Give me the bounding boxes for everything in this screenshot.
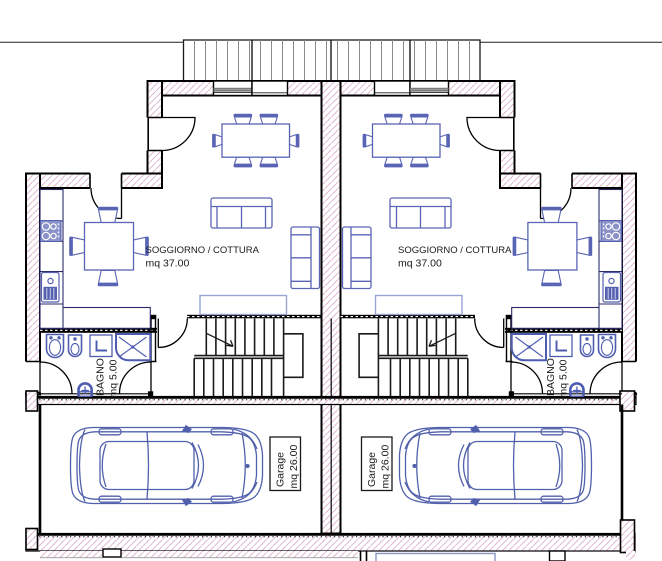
svg-text:mq 5.00: mq 5.00 xyxy=(108,359,120,397)
svg-text:SOGGIORNO / COTTURA: SOGGIORNO / COTTURA xyxy=(146,245,260,256)
svg-text:BAGNO: BAGNO xyxy=(545,358,557,396)
svg-text:BAGNO: BAGNO xyxy=(95,358,107,396)
svg-text:mq 26.00: mq 26.00 xyxy=(380,445,392,489)
svg-text:Garage: Garage xyxy=(366,452,378,487)
svg-text:mq 26.00: mq 26.00 xyxy=(288,445,300,489)
svg-text:mq 37.00: mq 37.00 xyxy=(146,257,190,269)
svg-text:SOGGIORNO / COTTURA: SOGGIORNO / COTTURA xyxy=(398,245,512,256)
svg-text:mq 5.00: mq 5.00 xyxy=(558,359,570,397)
svg-text:Garage: Garage xyxy=(275,452,287,487)
svg-text:mq 37.00: mq 37.00 xyxy=(398,257,442,269)
